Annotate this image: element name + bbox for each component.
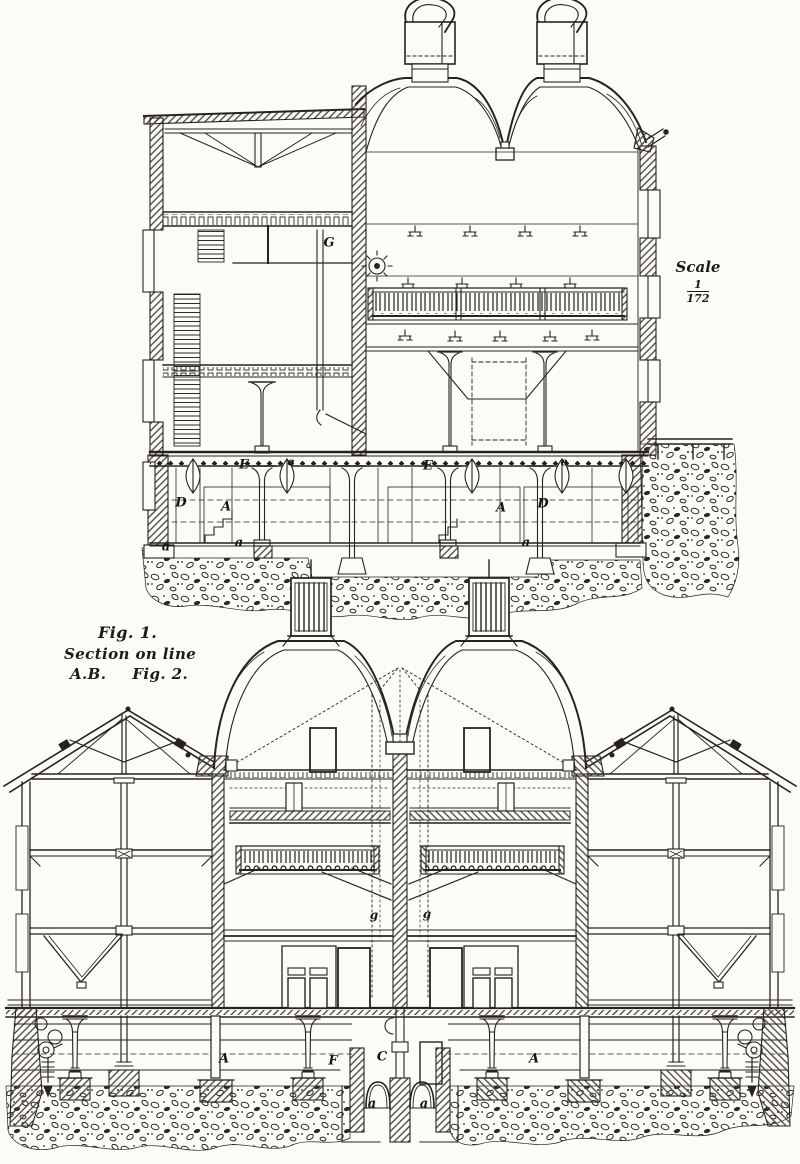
window — [143, 360, 154, 422]
window — [143, 462, 155, 510]
basement-steps — [196, 511, 232, 543]
party-wall — [352, 86, 366, 455]
right-wall — [640, 146, 656, 190]
window — [143, 230, 154, 292]
fig1-group — [142, 0, 739, 620]
flat-roof — [144, 109, 364, 124]
ground-rubble — [142, 548, 642, 620]
basement-chamber — [204, 487, 330, 543]
column — [536, 353, 554, 446]
fig2-left-half — [4, 560, 398, 1126]
window — [648, 190, 660, 238]
center-wall — [393, 750, 407, 1008]
pit-pier — [390, 1078, 410, 1142]
fig2-center-group — [342, 668, 458, 1142]
ground-rubble-right — [640, 444, 739, 597]
column — [441, 353, 459, 446]
pit-wall — [436, 1048, 450, 1132]
window — [648, 360, 660, 402]
left-wall — [150, 118, 163, 230]
basement-chamber — [524, 487, 638, 543]
section-drawing — [0, 0, 800, 1164]
fig2-right-half — [402, 560, 796, 1126]
window — [648, 276, 660, 318]
vault-pendant — [386, 742, 414, 754]
drying-floor — [374, 293, 622, 314]
hoist-shaft — [317, 230, 323, 410]
stair-upper — [198, 230, 224, 262]
engraving-sheet: Fig. 1. Section on line A.B.Fig. 2. Scal… — [0, 0, 800, 1164]
column — [252, 383, 272, 446]
vault-pendant — [496, 148, 514, 160]
pit-wall — [350, 1048, 364, 1132]
